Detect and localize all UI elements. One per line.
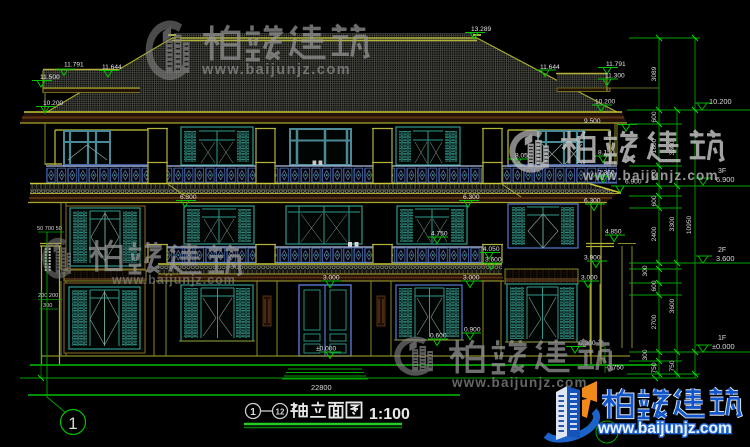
svg-text:300: 300 [43, 303, 52, 309]
svg-text:±0.000: ±0.000 [712, 342, 735, 351]
svg-text:0.900: 0.900 [464, 327, 481, 334]
svg-text:12: 12 [276, 408, 285, 417]
svg-text:www.baijunjz.com: www.baijunjz.com [201, 62, 351, 78]
svg-text:www.baijunjz.com: www.baijunjz.com [597, 420, 732, 437]
svg-text:3.600: 3.600 [716, 254, 735, 263]
svg-text:3F: 3F [718, 168, 726, 175]
svg-text:600: 600 [651, 280, 658, 291]
svg-text:-0.750: -0.750 [605, 365, 624, 372]
svg-text:6.900: 6.900 [716, 175, 735, 184]
svg-text:11.644: 11.644 [540, 64, 560, 71]
svg-text:22800: 22800 [311, 383, 332, 392]
svg-text:3.000: 3.000 [581, 275, 598, 282]
svg-text:3600: 3600 [669, 298, 676, 313]
svg-text:50 700 50: 50 700 50 [37, 226, 62, 232]
svg-text:2700: 2700 [651, 314, 658, 329]
svg-text:10.200: 10.200 [709, 97, 732, 106]
svg-text:11.791: 11.791 [64, 62, 84, 69]
svg-text:6.300: 6.300 [463, 194, 480, 201]
svg-text:600: 600 [651, 195, 658, 206]
svg-text:3.900: 3.900 [584, 255, 601, 262]
svg-text:750: 750 [669, 360, 676, 371]
svg-text:4.050: 4.050 [483, 246, 500, 253]
svg-text:3.600: 3.600 [485, 257, 502, 264]
svg-text:600: 600 [651, 111, 658, 122]
svg-text:3.000: 3.000 [463, 275, 480, 282]
svg-text:300: 300 [642, 349, 649, 360]
svg-text:1: 1 [250, 406, 256, 418]
svg-text:3.000: 3.000 [323, 275, 340, 282]
svg-text:300: 300 [642, 265, 649, 276]
svg-text:4.850: 4.850 [605, 229, 622, 236]
svg-text:3300: 3300 [669, 140, 676, 155]
svg-text:±0.000: ±0.000 [316, 346, 336, 353]
svg-text:10950: 10950 [686, 216, 693, 235]
svg-text:1: 1 [68, 414, 77, 433]
svg-text:6.300: 6.300 [180, 194, 197, 201]
svg-text:www.baijunjz.com: www.baijunjz.com [582, 168, 719, 183]
svg-text:2F: 2F [718, 247, 726, 254]
svg-text:11.644: 11.644 [102, 64, 122, 71]
svg-text:11.500: 11.500 [40, 74, 60, 81]
svg-text:2400: 2400 [651, 226, 658, 241]
svg-text:www.baijunjz.com: www.baijunjz.com [111, 273, 236, 287]
svg-text:11.300: 11.300 [605, 73, 625, 80]
svg-text:1F: 1F [718, 335, 726, 342]
svg-text:13.289: 13.289 [471, 26, 492, 33]
svg-text:0.600: 0.600 [430, 333, 447, 340]
svg-text:3089: 3089 [651, 66, 658, 81]
svg-text:750: 750 [651, 362, 658, 373]
svg-text:10.200: 10.200 [595, 99, 616, 106]
svg-text:3300: 3300 [669, 216, 676, 231]
svg-text:6.300: 6.300 [584, 198, 601, 205]
svg-text:10.200: 10.200 [43, 100, 64, 107]
svg-text:1:100: 1:100 [369, 406, 410, 423]
svg-text:9.500: 9.500 [584, 118, 601, 125]
svg-text:11.791: 11.791 [606, 61, 626, 68]
svg-text:4.750: 4.750 [431, 231, 448, 238]
